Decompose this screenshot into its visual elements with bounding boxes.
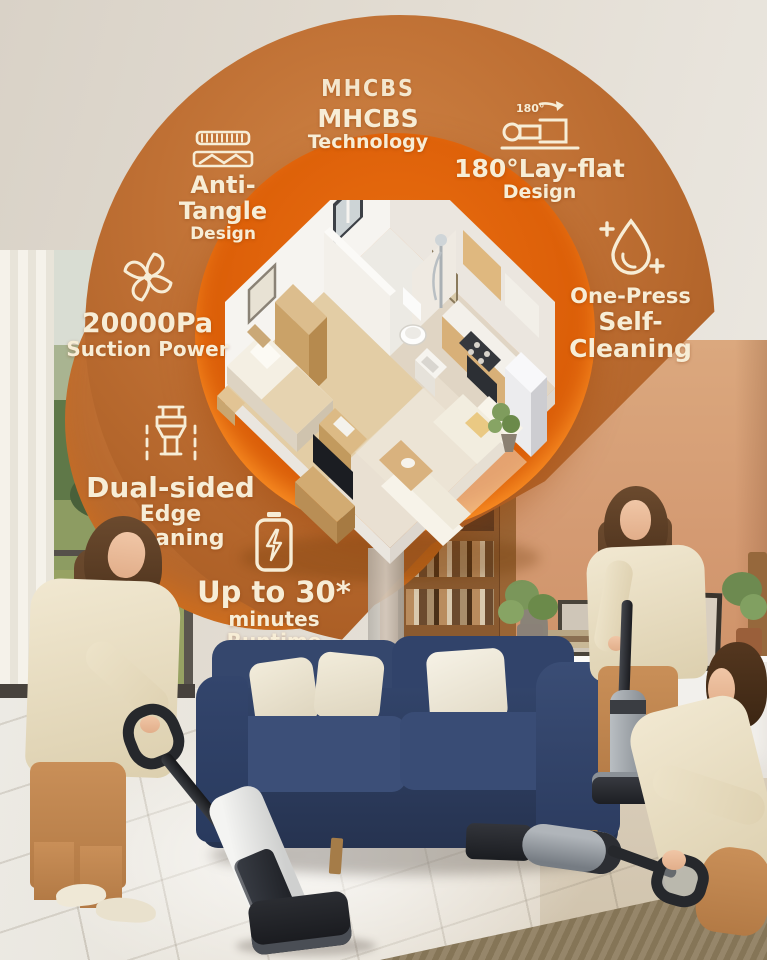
bookshelf-books-row [406, 589, 494, 625]
feature-subtitle: Self-Cleaning [543, 308, 718, 363]
product-feature-ad: MHCBS MHCBS Technology Anti-Tangle Desig… [0, 0, 767, 960]
feature-runtime: Up to 30* minutes Runtime [185, 512, 363, 652]
feature-lay-flat: 180° 180°Lay-flat Design [452, 94, 627, 203]
feature-title: One-Press [543, 285, 718, 308]
plant-foliage [498, 600, 524, 624]
brand-logo: MHCBS [288, 76, 448, 102]
woman-kneeling-hand [662, 850, 686, 870]
lay-flat-vacuum-icon: 180° [498, 94, 582, 152]
water-drop-icon [595, 216, 667, 282]
brand-block: MHCBS MHCBS Technology [288, 76, 448, 153]
plant [488, 419, 502, 433]
throw-pillow [313, 651, 386, 724]
plant-foliage [740, 594, 767, 620]
woman-right-face [620, 500, 651, 540]
feature-title: Anti-Tangle [148, 173, 298, 225]
feature-subtitle: Suction Power [65, 338, 230, 360]
feature-subtitle: Design [452, 182, 627, 203]
suction-fan-icon [119, 248, 177, 306]
feature-self-cleaning: One-Press Self-Cleaning [543, 216, 718, 363]
feature-title: Dual-sided [83, 473, 258, 503]
sofa-leg [329, 838, 343, 875]
standing-vacuum-ring [610, 700, 646, 714]
brand-title: MHCBS [288, 104, 448, 133]
feature-title: Up to 30* [185, 577, 363, 608]
feature-suction-power: 20000Pa Suction Power [65, 248, 230, 360]
edge-cleaning-icon [142, 404, 200, 470]
brand-subtitle: Technology [288, 131, 448, 153]
feature-title: 20000Pa [65, 309, 230, 338]
feature-title: 180°Lay-flat [452, 155, 627, 182]
anti-tangle-brush-icon [191, 130, 255, 170]
feature-subtitle: Design [148, 225, 298, 244]
plant-foliage [528, 594, 558, 620]
battery-bolt-icon [253, 512, 295, 574]
feature-anti-tangle: Anti-Tangle Design [148, 130, 298, 244]
